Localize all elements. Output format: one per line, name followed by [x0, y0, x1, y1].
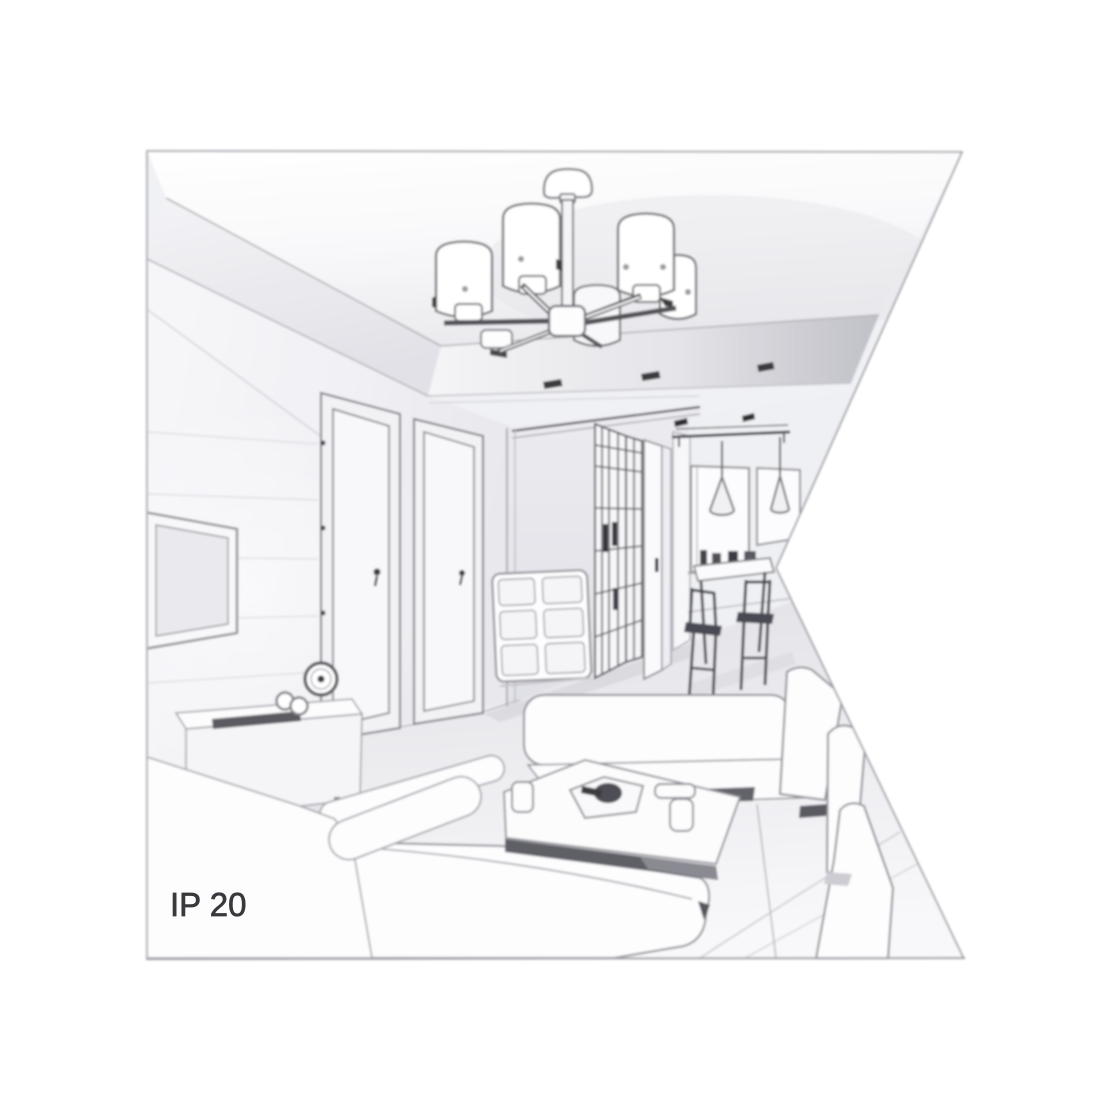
svg-text:IP 20: IP 20 — [170, 886, 246, 923]
